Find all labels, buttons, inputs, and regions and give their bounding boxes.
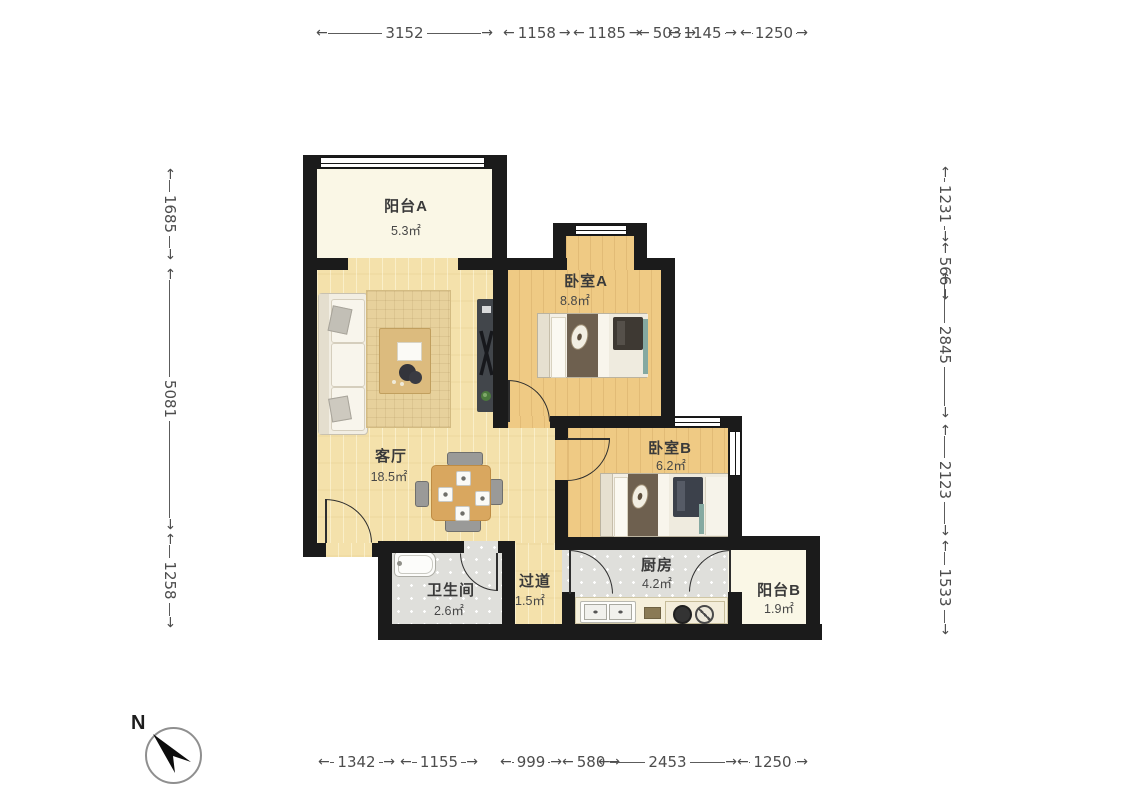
bed-a [537,313,647,378]
dim-right-1: 1231 [936,166,954,242]
dim-right-5: 1533 [936,540,954,635]
dim-right-2: 566 [936,242,954,270]
room-area-living: 18.5㎡ [371,466,408,485]
compass-north-label: N [131,712,145,735]
tv-icon [479,329,494,377]
room-bedroom-a-bay [566,236,634,270]
door-bedroom-b [567,438,610,481]
compass-icon [145,727,202,784]
wall [303,258,348,270]
wall [378,624,822,640]
wall [493,416,508,428]
burner-icon [695,605,714,624]
wall [502,541,515,624]
room-label-bathroom: 卫生间 [427,579,475,600]
bed-b [600,473,728,537]
room-label-balcony-b: 阳台B [757,579,801,600]
wall [303,155,317,557]
sink [580,601,636,623]
floor-plan-page: 阳台A 5.3㎡ 卧室A 8.8㎡ 客厅 18.5㎡ 卧室B 6.2㎡ 卫生间 … [0,0,1125,800]
wall [493,258,508,428]
dim-top-5: 1145 [668,24,737,42]
dim-top-2: 1158 [503,24,568,42]
door-balcony-b [689,550,731,592]
faucet-icon [397,561,402,566]
room-area-bathroom: 2.6㎡ [434,600,464,619]
door-kitchen [569,550,613,594]
plate [456,471,471,486]
wall [555,537,742,550]
dining-table [431,465,491,521]
dining-chair [447,452,483,466]
window [320,157,485,168]
threshold-entry [325,543,372,557]
dim-left-1: 1685 [161,168,179,260]
plate [475,491,490,506]
wall [555,416,568,440]
stove [665,601,725,624]
dim-bottom-6: 1250 [737,753,808,771]
room-label-living: 客厅 [375,445,407,466]
dim-bottom-1: 1342 [318,753,395,771]
door-entry [325,499,372,543]
wall [661,258,675,416]
dim-right-4: 2123 [936,424,954,536]
bathtub [394,551,436,577]
room-label-bedroom-a: 卧室A [564,270,608,291]
tray [397,342,422,361]
dining-chair [489,479,503,505]
dim-left-3: 1258 [161,533,179,628]
sofa [318,293,368,435]
sofa-pillow [328,395,352,422]
room-area-bedroom-b: 6.2㎡ [656,455,686,474]
room-area-bedroom-a: 8.8㎡ [560,290,590,309]
room-label-balcony-a: 阳台A [384,195,428,216]
dim-left-2: 5081 [161,268,179,530]
dim-right-3: 2845 [936,272,954,418]
plate [438,487,453,502]
room-label-hallway: 过道 [519,570,551,591]
dim-bottom-2: 1155 [400,753,478,771]
dim-top-4: 503 [638,24,668,42]
room-label-kitchen: 厨房 [641,554,673,575]
room-area-balcony-a: 5.3㎡ [391,220,421,239]
burner-icon [673,605,692,624]
dim-bottom-5: 2453 [598,753,737,771]
coffee-table [379,328,431,394]
room-living-floor-ext [508,428,555,545]
room-area-kitchen: 4.2㎡ [642,573,672,592]
wall [372,543,392,557]
window [729,431,741,476]
door-bedroom-a [508,380,550,422]
window [674,417,721,427]
dim-bottom-3: 999 [500,753,562,771]
wall [562,592,575,624]
wall [303,543,326,557]
compass-needle-icon [147,729,200,782]
dim-top-3: 1185 [573,24,638,42]
threshold-bathroom [462,541,498,553]
window [575,225,627,235]
cutting-board [644,607,661,619]
kitchen-counter [575,597,728,624]
dim-top-1: 3152 [316,24,493,42]
dim-bottom-4: 580 [562,753,598,771]
room-area-balcony-b: 1.9㎡ [764,598,794,617]
wall [492,155,507,270]
room-area-hallway: 1.5㎡ [515,590,545,609]
plate [455,506,470,521]
dining-chair [415,481,429,507]
dim-top-6: 1250 [740,24,808,42]
